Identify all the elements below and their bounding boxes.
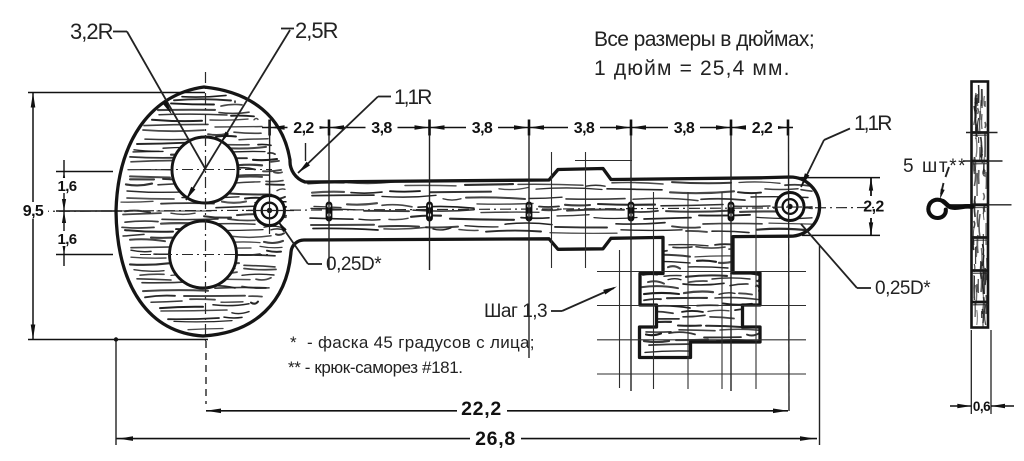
- svg-text:1,6: 1,6: [57, 231, 76, 248]
- svg-text:0,25D*: 0,25D*: [875, 278, 931, 299]
- svg-text:0,6: 0,6: [973, 399, 991, 414]
- svg-text:0,25D*: 0,25D*: [326, 254, 382, 275]
- svg-text:** - крюк-саморез #181.: ** - крюк-саморез #181.: [288, 358, 463, 377]
- svg-text:Шаг 1,3: Шаг 1,3: [484, 301, 547, 322]
- svg-text:3,8: 3,8: [472, 120, 493, 137]
- svg-text:Все размеры в дюймах;: Все размеры в дюймах;: [594, 28, 814, 51]
- svg-text:* - фаска 45 градусов с лица;: * - фаска 45 градусов с лица;: [290, 333, 535, 352]
- svg-text:2,2: 2,2: [752, 120, 773, 137]
- svg-text:5 шт**: 5 шт**: [903, 156, 967, 177]
- svg-text:1 дюйм = 25,4 мм.: 1 дюйм = 25,4 мм.: [594, 57, 791, 80]
- svg-text:3,8: 3,8: [674, 120, 695, 137]
- svg-text:3,8: 3,8: [574, 120, 595, 137]
- svg-text:9,5: 9,5: [23, 203, 44, 220]
- svg-text:1,1R: 1,1R: [394, 86, 432, 109]
- svg-text:2,5R: 2,5R: [295, 18, 338, 43]
- svg-text:2,2: 2,2: [863, 199, 884, 216]
- svg-text:1,6: 1,6: [57, 178, 76, 195]
- svg-text:26,8: 26,8: [475, 428, 516, 450]
- svg-text:2,2: 2,2: [293, 120, 314, 137]
- svg-text:22,2: 22,2: [461, 398, 502, 420]
- svg-text:3,8: 3,8: [371, 120, 392, 137]
- svg-text:1,1R: 1,1R: [854, 112, 892, 135]
- svg-text:3,2R: 3,2R: [70, 19, 113, 44]
